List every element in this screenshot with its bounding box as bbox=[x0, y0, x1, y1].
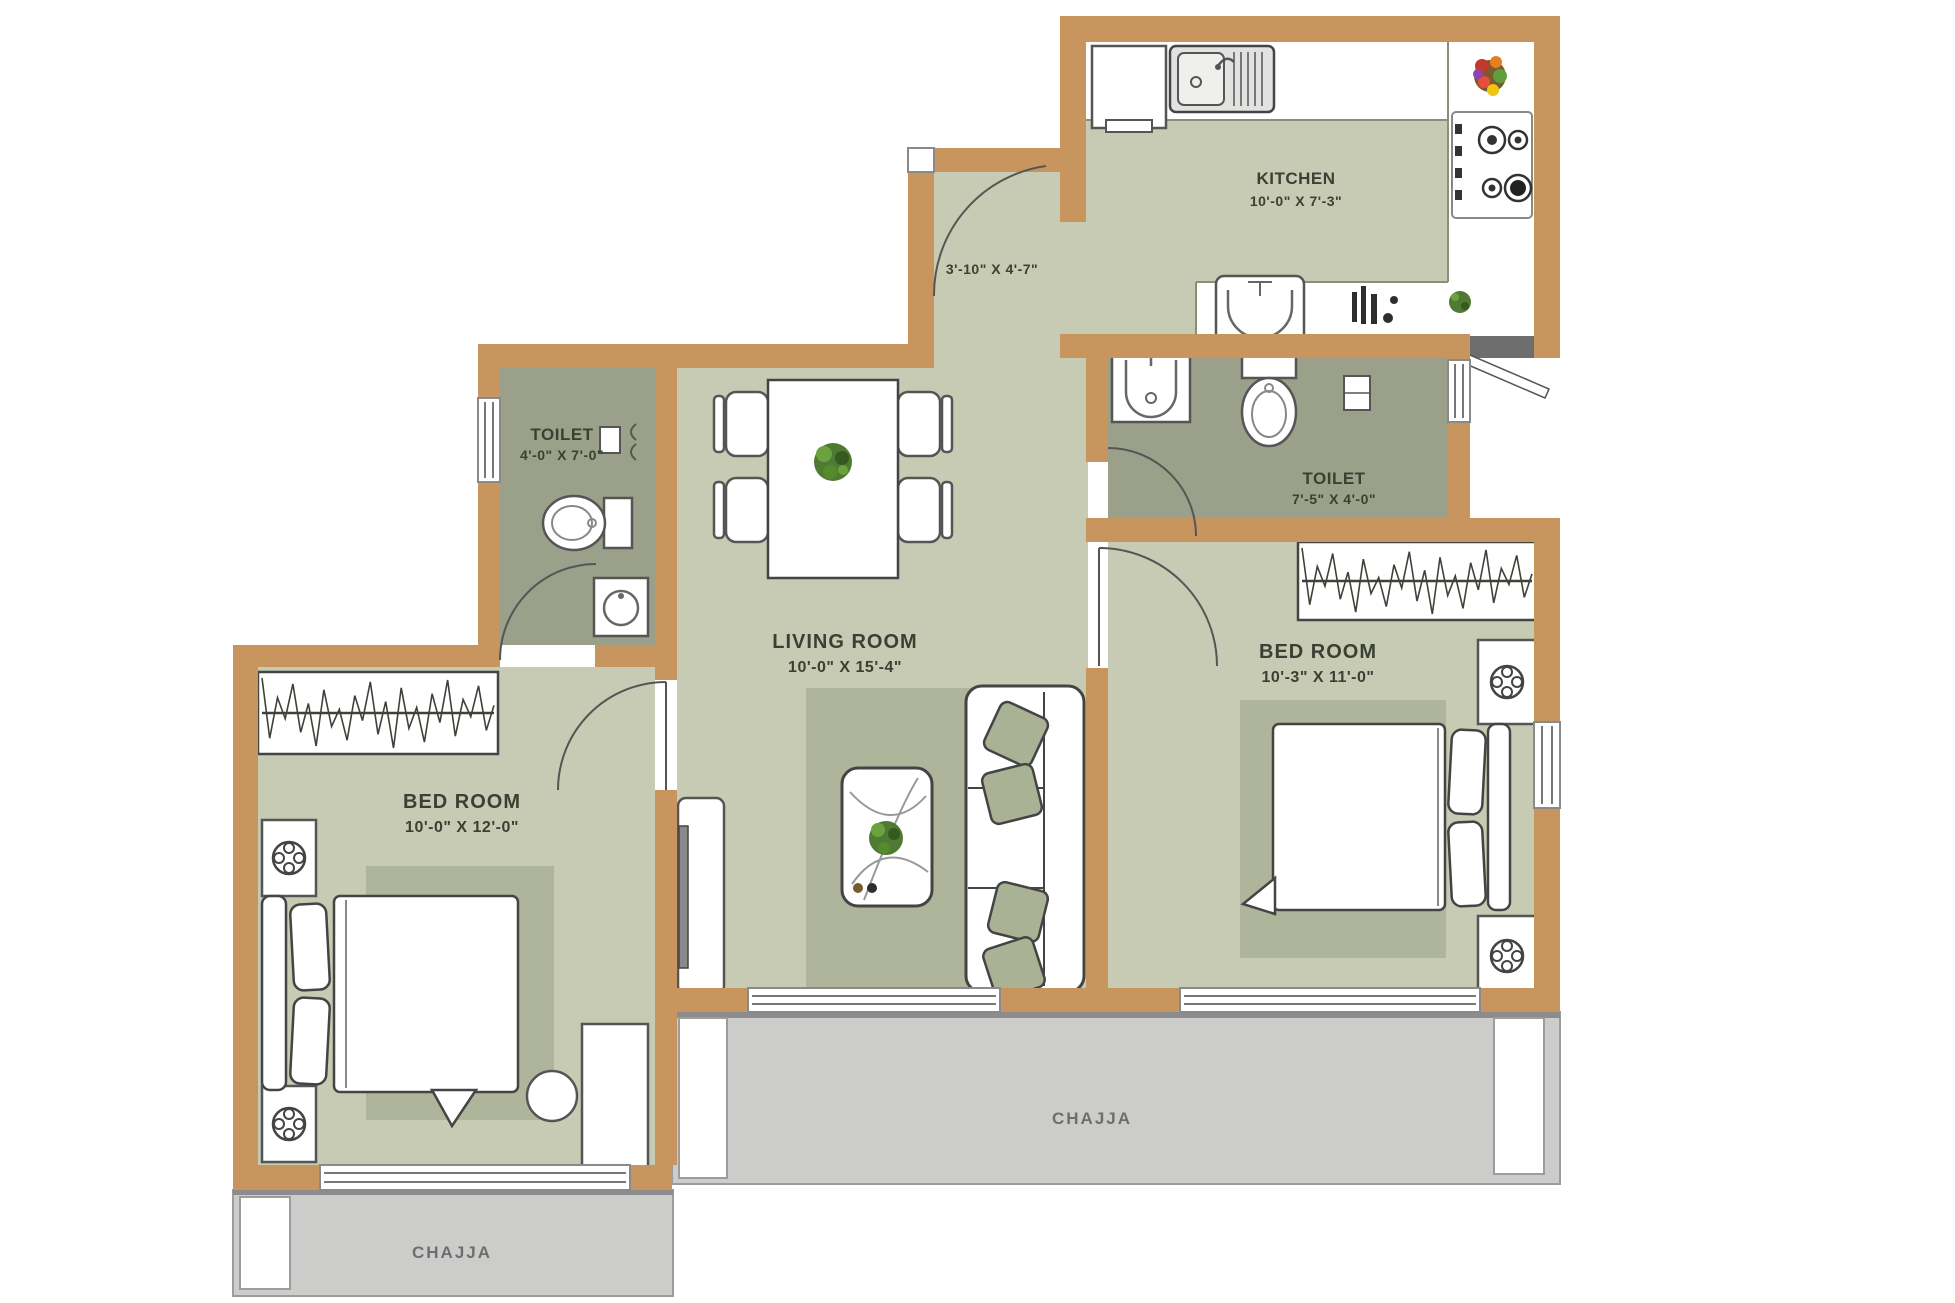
toilet-left-dims: 4'-0" X 7'-0" bbox=[520, 447, 604, 463]
window bbox=[1180, 988, 1480, 1012]
living-room-dims: 10'-0" X 15'-4" bbox=[788, 659, 902, 676]
chajja-center-floor bbox=[672, 1012, 1560, 1184]
window bbox=[320, 1165, 630, 1190]
pillow bbox=[290, 903, 330, 991]
side-table bbox=[1478, 916, 1536, 996]
bedroom-right-dims: 10'-3" X 11'-0" bbox=[1261, 669, 1374, 686]
bedroom-right-label: BED ROOM bbox=[1259, 641, 1377, 663]
side-table bbox=[262, 820, 316, 896]
wardrobe bbox=[1298, 542, 1536, 620]
stove-icon bbox=[1452, 112, 1532, 218]
washbasin-icon bbox=[594, 578, 648, 636]
chajja-left-label: CHAJJA bbox=[412, 1243, 492, 1262]
table-plant-icon bbox=[869, 821, 903, 855]
chajja-pillar bbox=[240, 1197, 290, 1289]
dining-table bbox=[768, 380, 898, 578]
kitchen-sink-icon bbox=[1170, 46, 1274, 112]
floor-plan: KITCHEN 10'-0" X 7'-3" 3'-10" X 4'-7" TO… bbox=[0, 0, 1955, 1303]
kitchen-dims: 10'-0" X 7'-3" bbox=[1250, 193, 1342, 209]
tv-icon bbox=[679, 826, 688, 968]
wc-icon bbox=[1242, 352, 1296, 446]
fridge-icon bbox=[1092, 46, 1166, 132]
dining-chair bbox=[898, 478, 952, 542]
chajja-pillar bbox=[1494, 1018, 1544, 1174]
washbasin-icon bbox=[1112, 352, 1190, 422]
window bbox=[748, 988, 1000, 1012]
dining-chair bbox=[714, 478, 768, 542]
bedroom-left-label: BED ROOM bbox=[403, 791, 521, 813]
dining-chair bbox=[898, 392, 952, 456]
window bbox=[1534, 722, 1560, 808]
coffee-table bbox=[842, 768, 932, 906]
window bbox=[478, 398, 500, 482]
pillow bbox=[1448, 821, 1486, 907]
wc-icon bbox=[543, 496, 632, 550]
chajja-pillar bbox=[679, 1018, 727, 1178]
tv-unit bbox=[678, 798, 724, 994]
pillow bbox=[1448, 729, 1486, 815]
window bbox=[908, 148, 934, 172]
sofa bbox=[966, 686, 1084, 1001]
toilet-left-label: TOILET bbox=[530, 425, 593, 444]
plant-icon bbox=[1449, 291, 1471, 313]
side-table bbox=[1478, 640, 1536, 724]
kitchen-label: KITCHEN bbox=[1256, 169, 1335, 188]
stool bbox=[527, 1071, 577, 1121]
toilet-right-label: TOILET bbox=[1302, 469, 1365, 488]
pillow bbox=[290, 997, 330, 1085]
bedroom-left-dims: 10'-0" X 12'-0" bbox=[405, 819, 519, 836]
dining-chair bbox=[714, 392, 768, 456]
chajja-center-label: CHAJJA bbox=[1052, 1109, 1132, 1128]
toilet-shelf bbox=[1344, 376, 1370, 410]
throw-pillow bbox=[986, 880, 1049, 943]
toilet-right-dims: 7'-5" X 4'-0" bbox=[1292, 491, 1376, 507]
passage-dims: 3'-10" X 4'-7" bbox=[946, 261, 1038, 277]
wardrobe bbox=[258, 672, 498, 754]
window bbox=[1448, 360, 1470, 422]
table-plant-icon bbox=[814, 443, 852, 481]
side-table bbox=[262, 1086, 316, 1162]
throw-pillow bbox=[980, 762, 1043, 825]
living-room-label: LIVING ROOM bbox=[772, 631, 917, 653]
